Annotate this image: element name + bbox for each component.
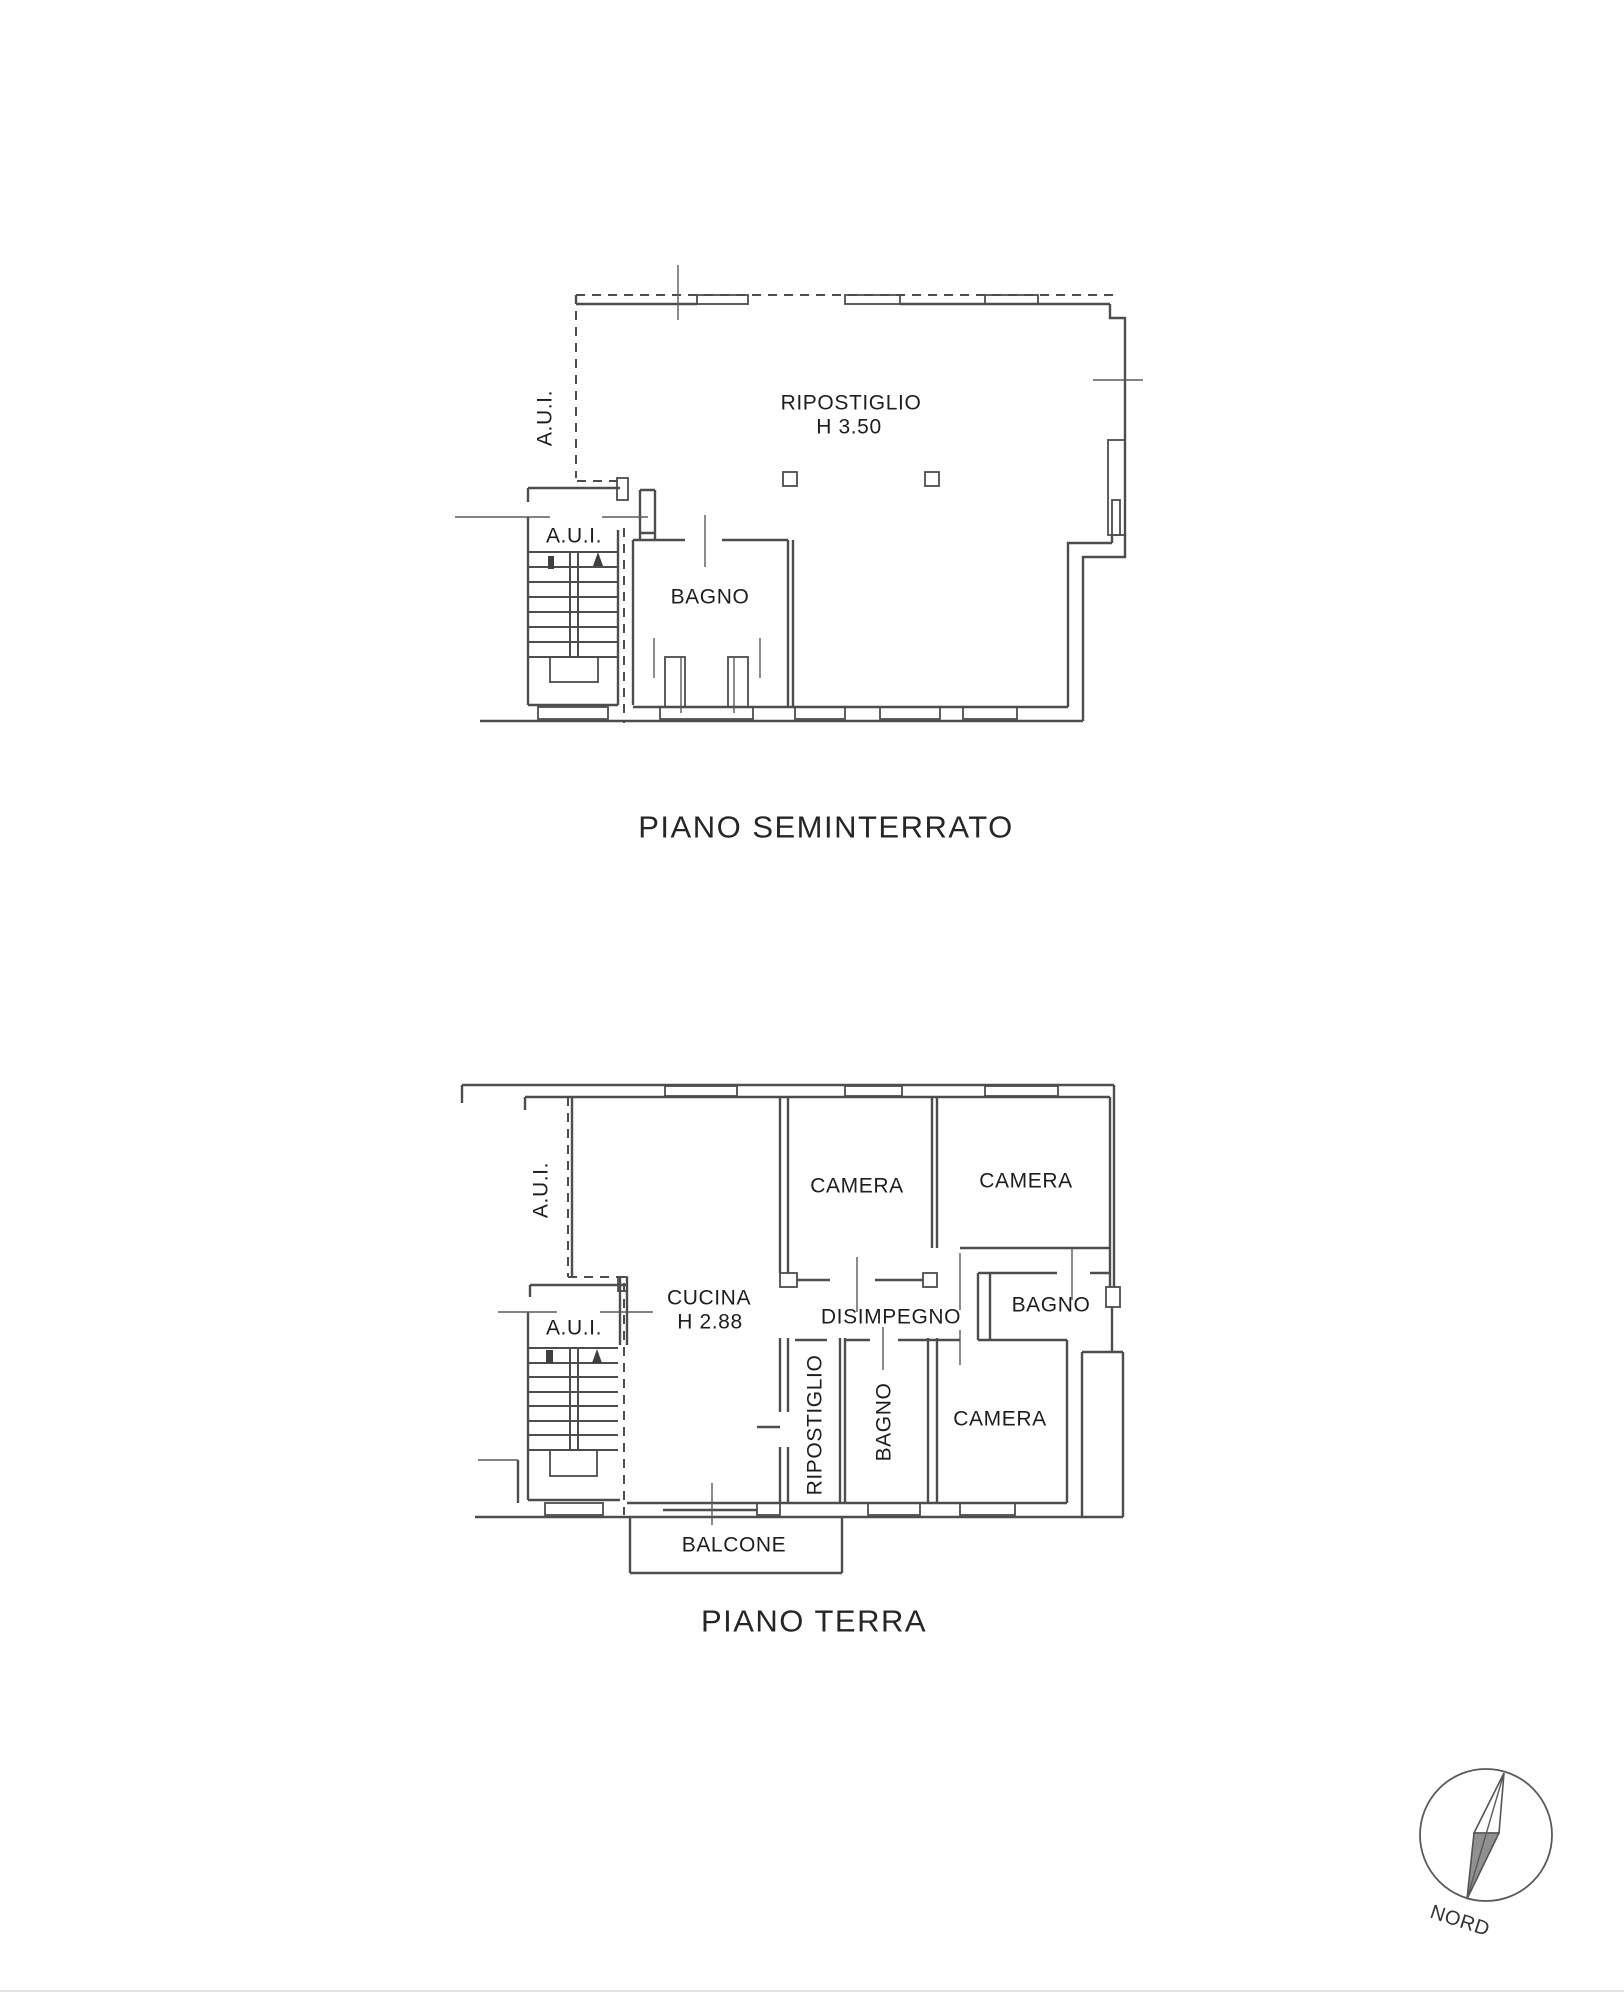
door-jamb bbox=[728, 657, 748, 707]
basement-window bbox=[963, 707, 1017, 719]
room-label-aui-entry-terra: A.U.I. bbox=[546, 1318, 602, 1339]
room-label-ripostiglio-terra: RIPOSTIGLIO bbox=[805, 1355, 826, 1496]
stair-direction-arrow bbox=[592, 1349, 602, 1363]
stair-landing bbox=[550, 657, 598, 682]
window bbox=[845, 295, 900, 304]
window-sill bbox=[960, 1503, 1015, 1515]
window-sill bbox=[868, 1503, 920, 1515]
terra-stairs bbox=[528, 1348, 618, 1450]
column bbox=[783, 472, 797, 486]
seminterrato-dashed-lines bbox=[576, 295, 1120, 723]
window bbox=[985, 295, 1038, 304]
wall-end-cap bbox=[780, 1273, 797, 1287]
compass-axis bbox=[1467, 1773, 1504, 1899]
room-label-aui-entry-seminterrato: A.U.I. bbox=[546, 526, 602, 547]
room-label-camera-top-right: CAMERA bbox=[979, 1171, 1072, 1192]
room-label-aui-side-terra: A.U.I. bbox=[531, 1162, 552, 1218]
window-sill bbox=[545, 1503, 603, 1515]
basement-window bbox=[880, 707, 940, 719]
window-sill bbox=[757, 1503, 780, 1515]
window bbox=[697, 295, 748, 304]
stair-start-marker bbox=[548, 556, 554, 569]
terra-door-ticks bbox=[478, 1248, 1072, 1525]
room-label-disimpegno: DISIMPEGNO bbox=[821, 1307, 961, 1328]
basement-window bbox=[795, 707, 845, 719]
floor-plan-sheet: A.U.I. A.U.I. BAGNO RIPOSTIGLIO H 3.50 P… bbox=[0, 0, 1624, 2000]
floor-title-terra: PIANO TERRA bbox=[701, 1606, 927, 1637]
room-label-bagno-seminterrato: BAGNO bbox=[671, 587, 750, 608]
compass-rose bbox=[1420, 1769, 1552, 1901]
floor-title-seminterrato: PIANO SEMINTERRATO bbox=[638, 812, 1014, 843]
floor-plan-drawing bbox=[0, 0, 1624, 2000]
room-label-bagno-bottom: BAGNO bbox=[874, 1383, 895, 1462]
stair-start-marker bbox=[546, 1350, 553, 1363]
seminterrato-plan bbox=[455, 265, 1143, 723]
room-label-bagno-right: BAGNO bbox=[1012, 1295, 1091, 1316]
room-height-cucina: H 2.88 bbox=[677, 1312, 742, 1333]
window bbox=[845, 1086, 902, 1096]
seminterrato-stairs bbox=[528, 552, 618, 657]
basement-window bbox=[538, 707, 608, 719]
wall-end-cap bbox=[923, 1273, 937, 1287]
basement-window bbox=[660, 707, 753, 719]
room-label-camera-bottom: CAMERA bbox=[953, 1409, 1046, 1430]
window bbox=[1106, 1287, 1120, 1307]
room-label-balcone: BALCONE bbox=[682, 1535, 787, 1556]
window bbox=[665, 1086, 737, 1096]
stair-direction-arrow bbox=[593, 552, 603, 566]
window bbox=[1108, 440, 1125, 535]
window bbox=[985, 1086, 1058, 1096]
door-jamb bbox=[665, 657, 685, 707]
room-height-ripostiglio: H 3.50 bbox=[816, 417, 881, 438]
room-label-cucina: CUCINA bbox=[667, 1288, 751, 1309]
room-label-camera-top-mid: CAMERA bbox=[810, 1176, 903, 1197]
window-sash bbox=[1112, 500, 1120, 535]
stair-landing bbox=[550, 1450, 597, 1476]
room-label-ripostiglio-seminterrato: RIPOSTIGLIO bbox=[781, 393, 922, 414]
column bbox=[925, 472, 939, 486]
room-label-aui-side-seminterrato: A.U.I. bbox=[535, 390, 556, 446]
